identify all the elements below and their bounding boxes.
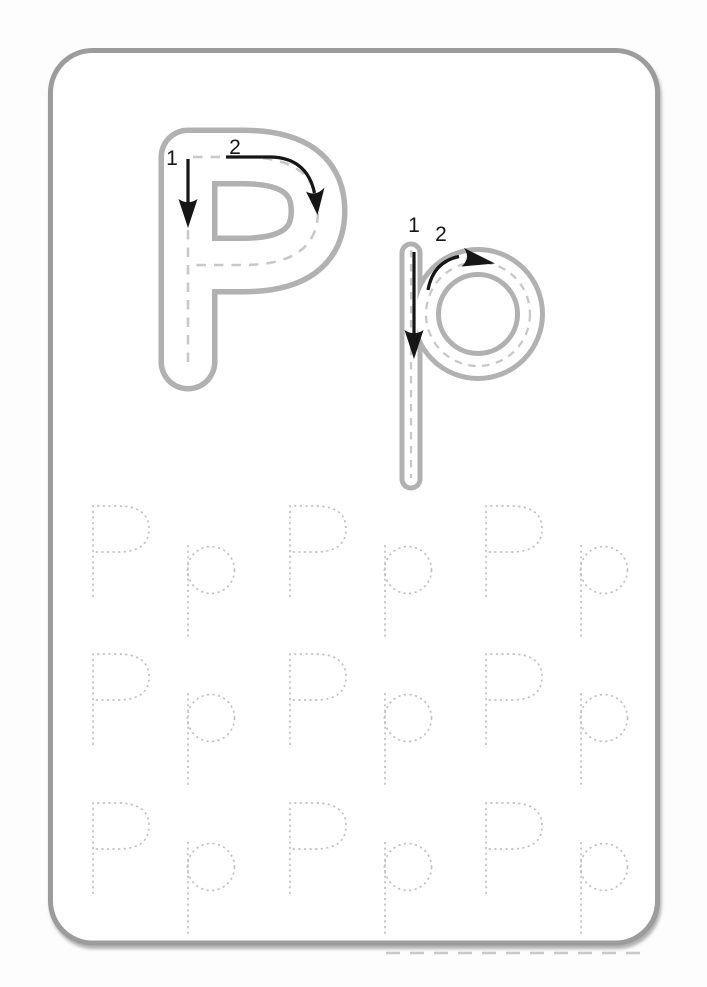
uppercase-stroke1-label: 1: [166, 147, 178, 170]
worksheet-page: 1 2 1 2: [0, 0, 707, 987]
lowercase-stroke1-label: 1: [408, 214, 420, 237]
lowercase-stroke2-label: 2: [435, 223, 447, 246]
worksheet-canvas: 1 2 1 2: [0, 0, 707, 987]
